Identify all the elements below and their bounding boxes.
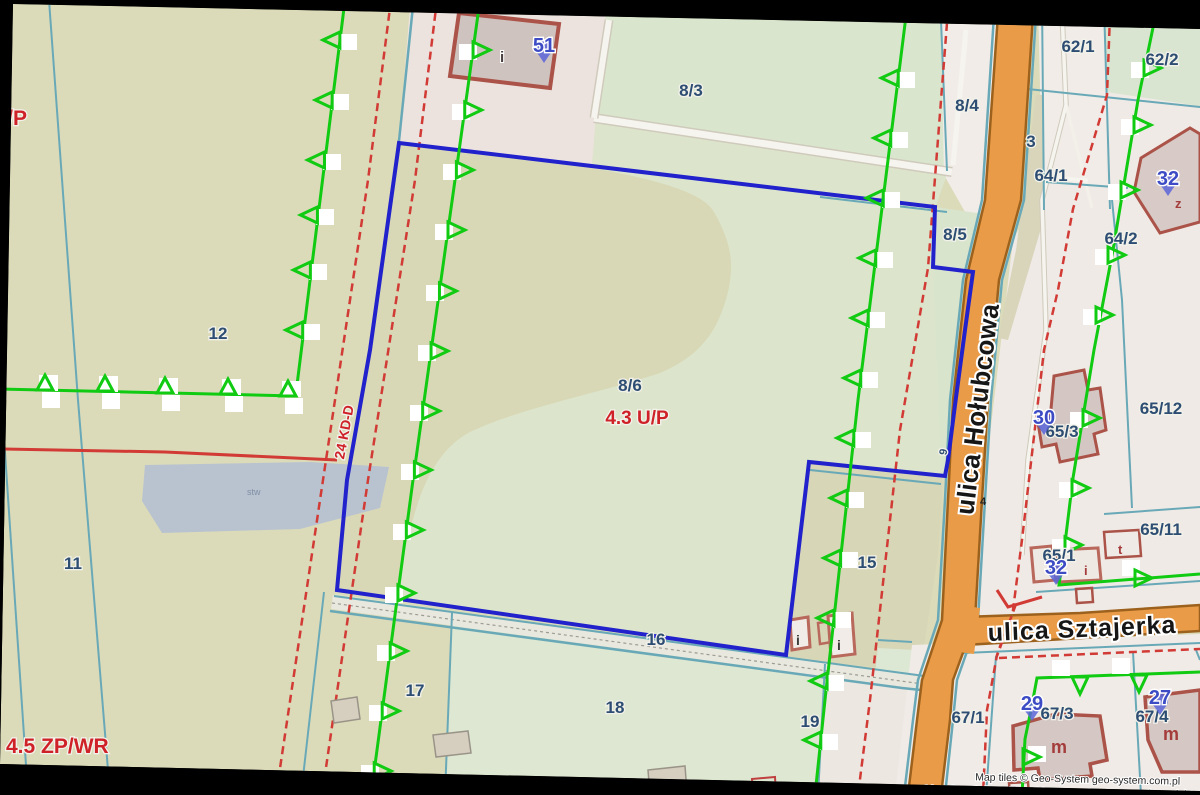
svg-text:67/3: 67/3 — [1040, 704, 1073, 723]
svg-text:t: t — [1118, 542, 1123, 557]
svg-text:32: 32 — [1045, 557, 1067, 579]
svg-text:4.5 ZP/WR: 4.5 ZP/WR — [6, 735, 109, 758]
svg-text:m: m — [1051, 737, 1067, 757]
svg-text:i: i — [837, 637, 841, 653]
svg-text:62/2: 62/2 — [1145, 50, 1178, 69]
svg-text:8/5: 8/5 — [943, 225, 967, 244]
svg-text:i: i — [500, 49, 504, 66]
svg-text:8/4: 8/4 — [955, 96, 979, 115]
svg-text:3: 3 — [1026, 132, 1035, 151]
svg-text:16: 16 — [647, 630, 666, 649]
svg-text:64/2: 64/2 — [1104, 229, 1137, 248]
svg-text:27: 27 — [1149, 687, 1171, 709]
svg-text:4.3 U/P: 4.3 U/P — [605, 408, 669, 429]
svg-text:65/12: 65/12 — [1140, 399, 1183, 418]
svg-text:29: 29 — [1021, 693, 1043, 715]
svg-text:51: 51 — [533, 35, 555, 57]
svg-text:17: 17 — [406, 681, 425, 700]
svg-text:i: i — [1084, 563, 1088, 578]
svg-text:15: 15 — [858, 553, 877, 572]
svg-text:64/1: 64/1 — [1034, 166, 1067, 185]
svg-text:62/1: 62/1 — [1061, 37, 1094, 56]
svg-text:18: 18 — [606, 698, 625, 717]
svg-text:m: m — [1163, 724, 1179, 744]
svg-text:i: i — [796, 632, 800, 648]
svg-text:32: 32 — [1157, 168, 1179, 190]
svg-text:19: 19 — [801, 712, 820, 731]
svg-text:67/1: 67/1 — [951, 708, 984, 727]
svg-text:11: 11 — [64, 554, 82, 573]
svg-text:65/11: 65/11 — [1140, 520, 1182, 539]
svg-text:12: 12 — [209, 324, 228, 343]
svg-text:4: 4 — [980, 496, 987, 508]
svg-text:stw: stw — [247, 487, 261, 497]
svg-text:8/3: 8/3 — [679, 81, 703, 100]
svg-text:z: z — [1175, 196, 1182, 211]
svg-text:8/6: 8/6 — [618, 376, 642, 395]
svg-text:30: 30 — [1033, 407, 1055, 429]
